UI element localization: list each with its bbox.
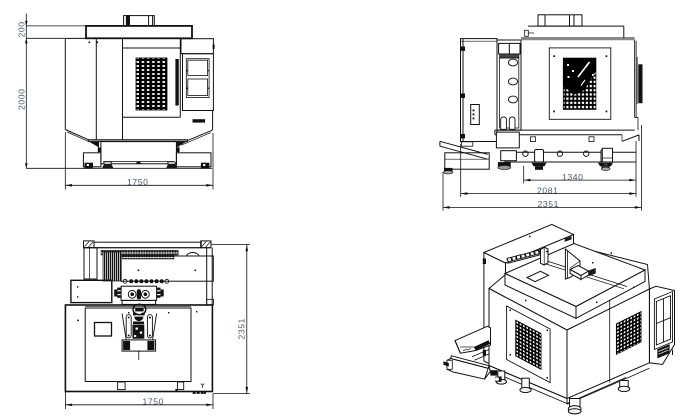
svg-text:1750: 1750: [127, 177, 149, 187]
svg-text:1750: 1750: [143, 397, 165, 407]
svg-text:1340: 1340: [562, 172, 584, 182]
svg-text:2081: 2081: [537, 185, 559, 195]
svg-text:2351: 2351: [237, 318, 247, 340]
svg-text:2000: 2000: [17, 88, 27, 110]
svg-text:2351: 2351: [538, 199, 560, 209]
svg-text:200: 200: [17, 21, 27, 37]
